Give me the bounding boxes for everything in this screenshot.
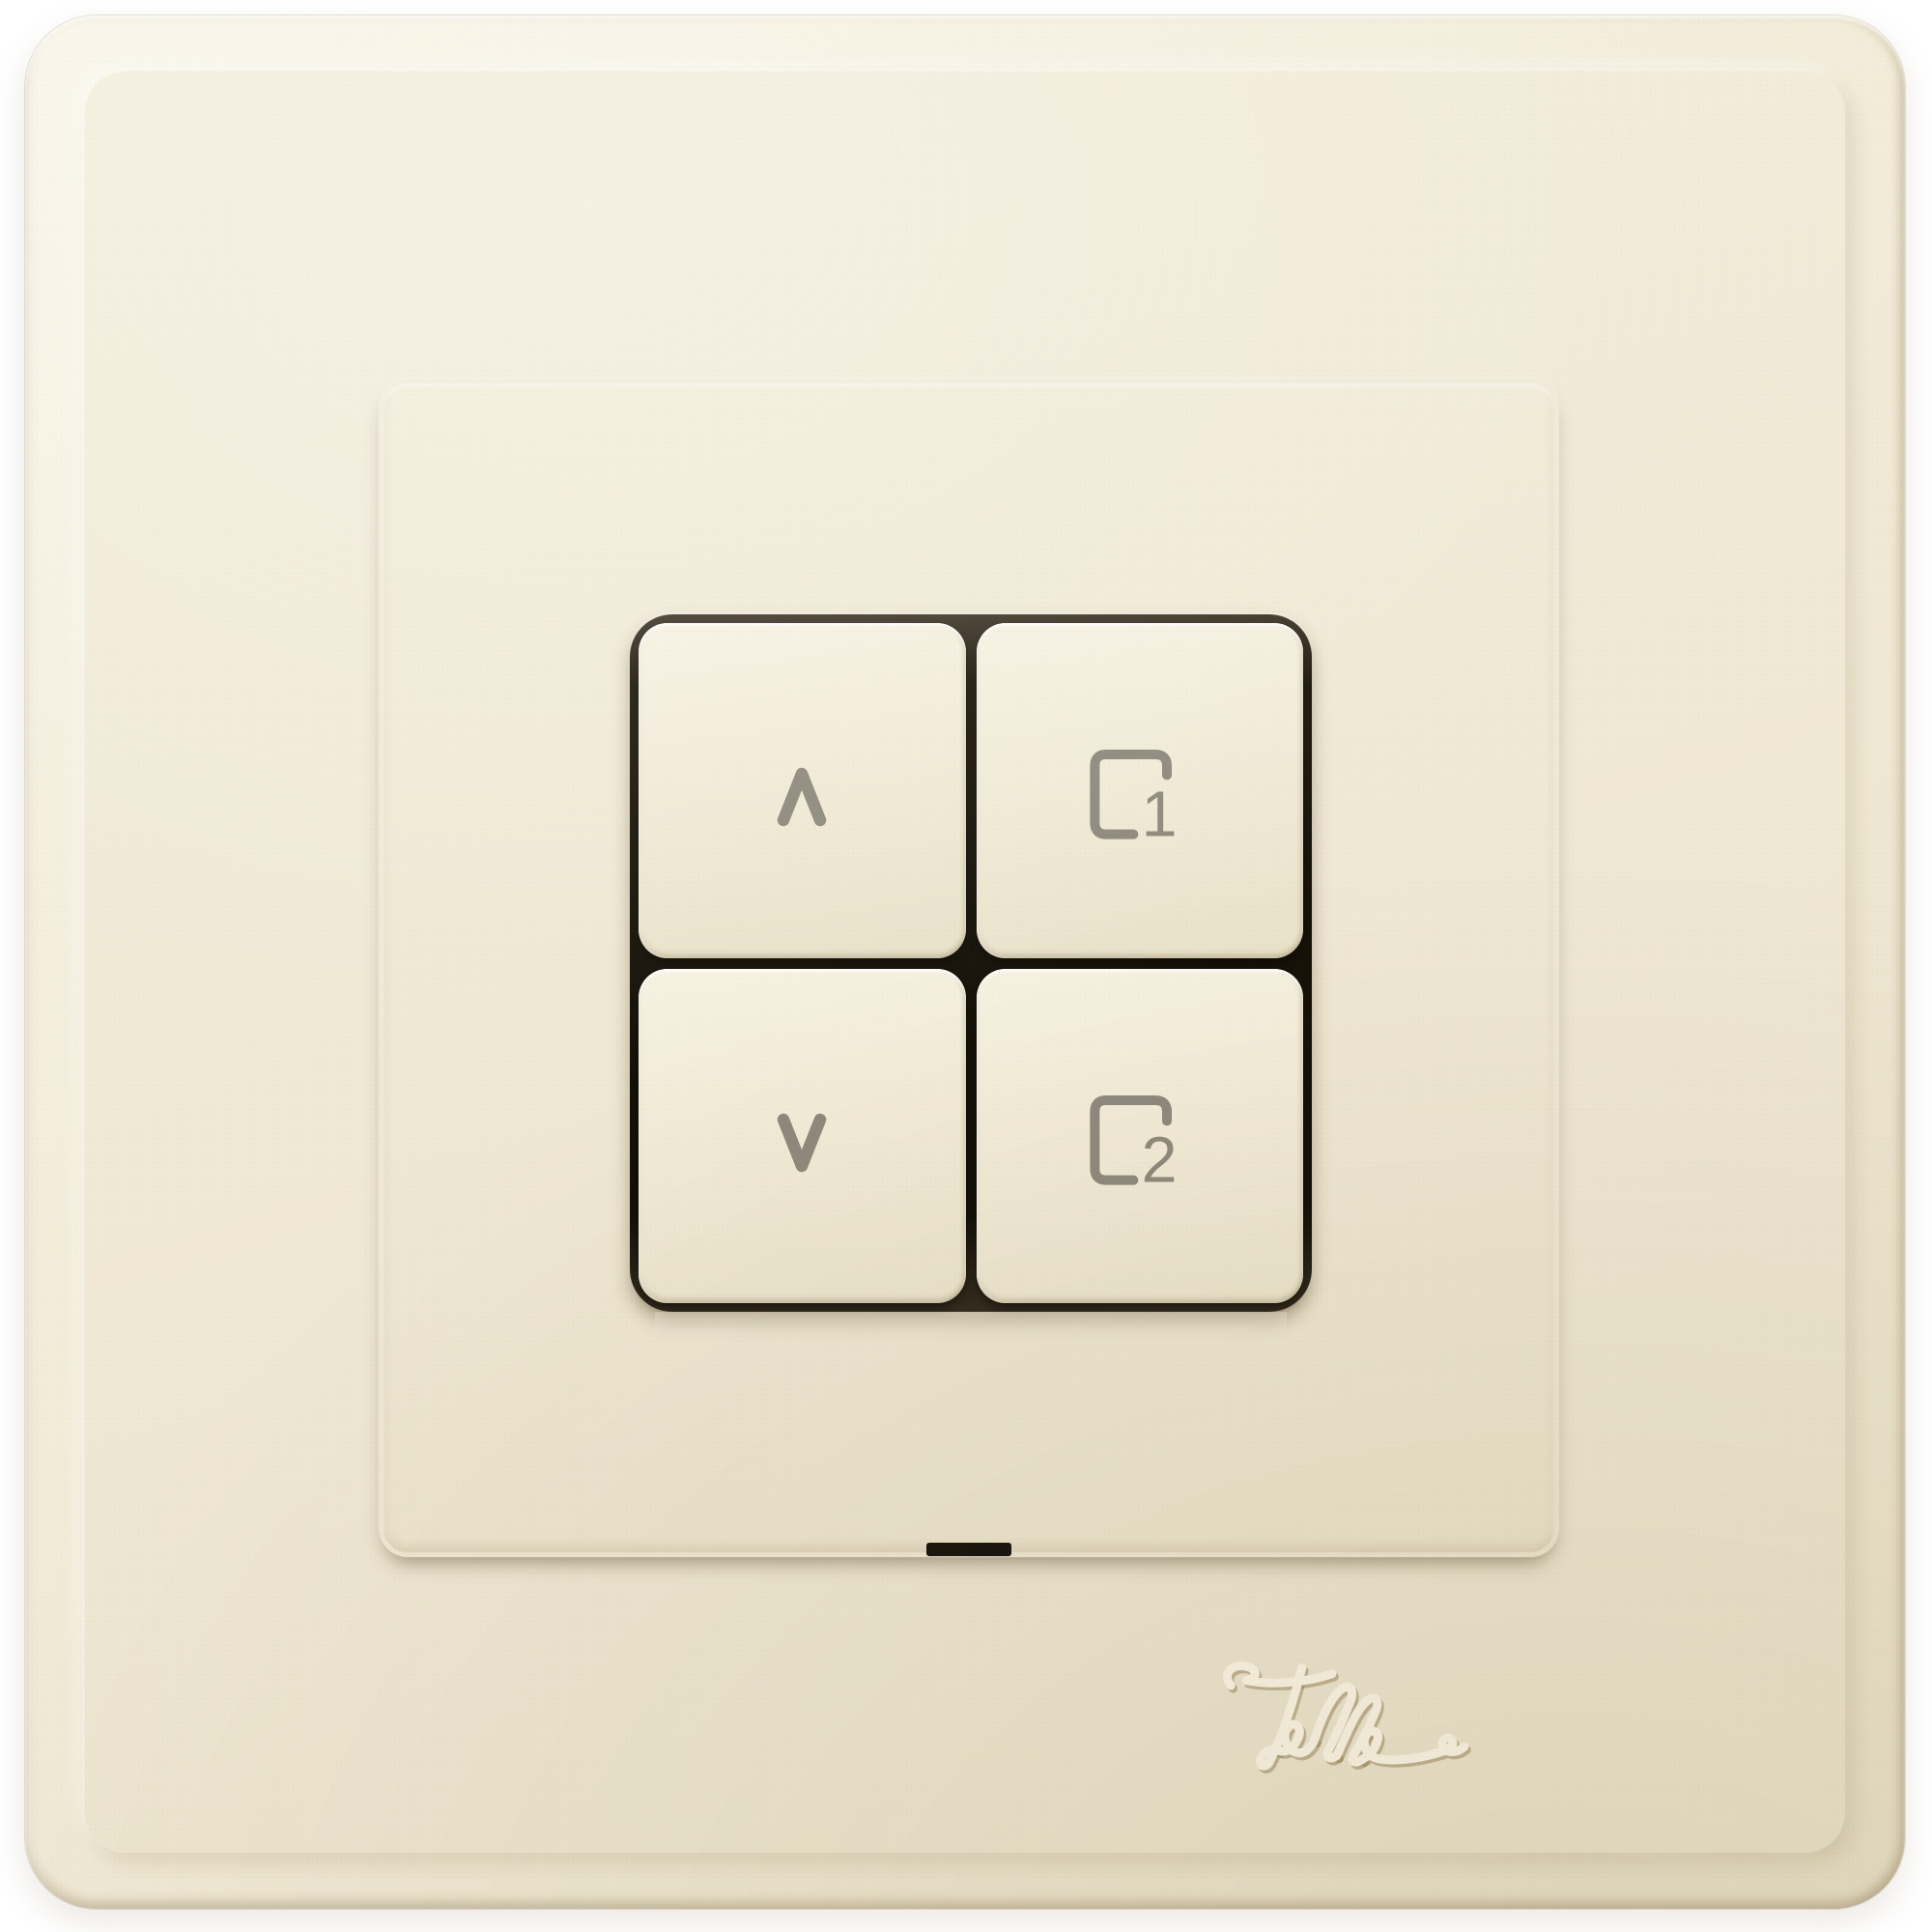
release-notch	[926, 1543, 1011, 1556]
key-block: 1 2	[630, 614, 1312, 1312]
key-up-button[interactable]	[639, 623, 966, 958]
key-scene-2-button[interactable]: 2	[977, 969, 1304, 1304]
feller-signature-logo: Feller	[1209, 1652, 1482, 1789]
center-module: 1 2	[384, 384, 1554, 1552]
center-module-seam: 1 2	[379, 379, 1559, 1557]
key-scene-1-button[interactable]: 1	[977, 623, 1304, 958]
wall-switch-plate: 1 2 Feller	[25, 15, 1905, 1909]
scene-1-number: 1	[1141, 780, 1177, 851]
scene-square-icon: 1	[1082, 739, 1198, 855]
key-down-button[interactable]	[639, 969, 966, 1304]
scene-square-icon: 2	[1082, 1085, 1198, 1201]
product-photo-background: { "device": { "type": "4-button flush wa…	[0, 0, 1932, 1932]
chevron-up-icon	[775, 764, 829, 830]
chevron-down-icon	[775, 1110, 829, 1176]
scene-2-number: 2	[1141, 1124, 1177, 1196]
